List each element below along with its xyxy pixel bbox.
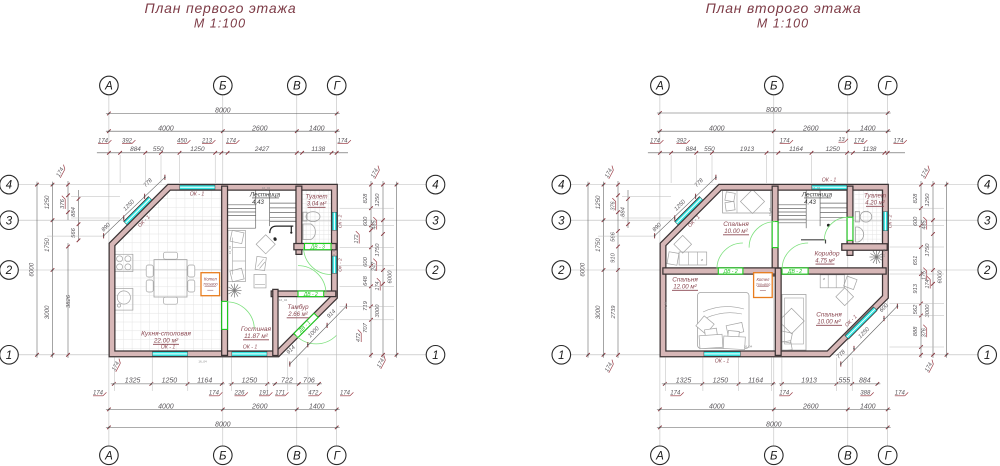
svg-text:План второго этажа: План второго этажа — [706, 0, 862, 16]
svg-text:ДВ - 3: ДВ - 3 — [310, 245, 325, 251]
svg-text:651: 651 — [913, 256, 919, 266]
svg-text:А: А — [104, 450, 113, 462]
svg-text:4,43: 4,43 — [252, 200, 264, 206]
svg-text:910: 910 — [611, 252, 617, 262]
svg-text:1164: 1164 — [789, 146, 803, 153]
svg-text:Котел: Котел — [204, 277, 217, 282]
svg-text:4000: 4000 — [709, 403, 725, 410]
svg-text:700х800: 700х800 — [756, 283, 771, 287]
svg-text:ОК - 2: ОК - 2 — [888, 214, 894, 228]
svg-text:1913: 1913 — [801, 377, 817, 384]
svg-text:6000: 6000 — [29, 262, 36, 276]
svg-text:Спальня: Спальня — [723, 221, 749, 228]
svg-text:4: 4 — [432, 180, 438, 192]
svg-text:10.00 м²: 10.00 м² — [817, 319, 841, 326]
svg-text:3: 3 — [432, 215, 439, 227]
svg-text:1250: 1250 — [713, 377, 729, 384]
svg-text:12.00 м²: 12.00 м² — [673, 284, 697, 291]
svg-text:1250: 1250 — [375, 193, 381, 207]
svg-text:16_04: 16_04 — [262, 186, 271, 190]
svg-text:А: А — [104, 81, 113, 93]
svg-text:4000: 4000 — [158, 125, 174, 132]
svg-text:Г: Г — [885, 81, 892, 93]
svg-text:1138: 1138 — [311, 146, 325, 153]
svg-text:Г: Г — [334, 81, 341, 93]
svg-text:Туалет: Туалет — [864, 193, 886, 200]
svg-text:1: 1 — [6, 350, 12, 362]
svg-text:ДВ - 2: ДВ - 2 — [303, 292, 318, 298]
svg-text:648: 648 — [363, 275, 369, 285]
svg-text:Г: Г — [334, 450, 341, 462]
svg-text:4: 4 — [984, 180, 990, 192]
svg-text:1250: 1250 — [925, 193, 931, 207]
svg-text:16_04: 16_04 — [882, 248, 886, 257]
svg-text:Котел: Котел — [756, 277, 769, 282]
svg-text:884: 884 — [130, 146, 141, 153]
svg-text:2: 2 — [557, 265, 565, 277]
svg-text:ОК - 1: ОК - 1 — [822, 178, 837, 184]
svg-text:1138: 1138 — [863, 146, 877, 153]
svg-text:А: А — [655, 450, 664, 462]
svg-text:4: 4 — [6, 180, 12, 192]
svg-text:1400: 1400 — [860, 125, 876, 132]
svg-text:В: В — [844, 450, 852, 462]
svg-text:М 1:100: М 1:100 — [757, 17, 809, 31]
svg-text:4.20 м²: 4.20 м² — [865, 201, 885, 207]
svg-text:ОК - 2: ОК - 2 — [338, 258, 344, 272]
svg-text:22.00 м²: 22.00 м² — [153, 338, 179, 345]
svg-text:1750: 1750 — [925, 243, 931, 257]
svg-text:600: 600 — [363, 256, 369, 266]
svg-text:1750: 1750 — [375, 243, 381, 257]
svg-text:11.87 м²: 11.87 м² — [244, 333, 269, 340]
svg-text:Туалет: Туалет — [305, 194, 327, 201]
svg-text:1325: 1325 — [676, 377, 692, 384]
svg-text:1164: 1164 — [197, 377, 212, 384]
svg-text:Б: Б — [770, 450, 778, 462]
svg-text:Лестница: Лестница — [249, 191, 281, 198]
svg-text:2: 2 — [5, 265, 13, 277]
svg-text:16_04: 16_04 — [744, 345, 753, 349]
svg-text:1750: 1750 — [595, 238, 602, 252]
svg-text:706: 706 — [303, 377, 315, 384]
svg-text:1: 1 — [558, 350, 564, 362]
svg-text:884: 884 — [859, 377, 871, 384]
svg-text:16_04: 16_04 — [768, 207, 772, 216]
svg-text:1250: 1250 — [162, 377, 178, 384]
svg-text:8000: 8000 — [215, 108, 231, 115]
svg-text:566: 566 — [611, 231, 617, 241]
svg-text:2739: 2739 — [611, 305, 617, 320]
svg-text:913: 913 — [913, 283, 919, 293]
svg-text:Гостиная: Гостиная — [241, 326, 272, 333]
svg-text:Б: Б — [219, 81, 227, 93]
svg-text:В: В — [293, 450, 301, 462]
svg-text:3.04 м²: 3.04 м² — [307, 202, 327, 208]
svg-text:16_04: 16_04 — [198, 360, 207, 364]
svg-text:722: 722 — [281, 377, 293, 384]
svg-text:В: В — [293, 81, 301, 93]
svg-text:1400: 1400 — [309, 125, 325, 132]
svg-text:М 1:100: М 1:100 — [194, 17, 246, 31]
svg-text:Б: Б — [219, 450, 227, 462]
svg-text:10.00 м²: 10.00 м² — [724, 228, 748, 235]
svg-text:4: 4 — [558, 180, 564, 192]
svg-text:2: 2 — [431, 265, 439, 277]
svg-text:3000: 3000 — [595, 305, 602, 319]
svg-text:2600: 2600 — [251, 403, 268, 410]
svg-text:1: 1 — [432, 350, 438, 362]
svg-text:3: 3 — [984, 215, 991, 227]
svg-text:2427: 2427 — [254, 146, 270, 153]
svg-text:3: 3 — [6, 215, 13, 227]
svg-text:1325: 1325 — [125, 377, 141, 384]
svg-text:719: 719 — [363, 300, 369, 310]
svg-text:6000: 6000 — [938, 270, 944, 284]
svg-text:1: 1 — [984, 350, 990, 362]
svg-text:Лестница: Лестница — [801, 191, 833, 198]
svg-text:В: В — [844, 81, 852, 93]
svg-text:700х800: 700х800 — [203, 282, 218, 286]
svg-text:6000: 6000 — [388, 270, 394, 284]
svg-text:3000: 3000 — [375, 304, 381, 318]
svg-text:1913: 1913 — [740, 146, 755, 153]
svg-text:8000: 8000 — [766, 107, 782, 114]
svg-text:884: 884 — [71, 207, 77, 217]
svg-text:2.66 м²: 2.66 м² — [287, 312, 308, 318]
svg-text:600: 600 — [363, 216, 369, 226]
svg-text:828: 828 — [363, 193, 369, 203]
svg-text:Тамбур: Тамбур — [287, 304, 309, 311]
svg-text:ОК - 1: ОК - 1 — [190, 192, 205, 198]
svg-text:16_04: 16_04 — [228, 245, 232, 254]
svg-text:4,43: 4,43 — [804, 200, 816, 206]
svg-text:8000: 8000 — [766, 422, 782, 429]
svg-text:828: 828 — [913, 193, 919, 203]
svg-text:16_04: 16_04 — [664, 301, 668, 310]
svg-text:884: 884 — [686, 146, 697, 153]
svg-text:550: 550 — [704, 146, 715, 153]
svg-text:Коридор: Коридор — [814, 250, 840, 258]
svg-text:4000: 4000 — [709, 125, 725, 132]
svg-text:3826: 3826 — [66, 294, 72, 308]
svg-text:1250: 1250 — [595, 195, 602, 209]
svg-text:1250: 1250 — [242, 377, 258, 384]
svg-text:План первого этажа: План первого этажа — [145, 0, 297, 16]
svg-text:1400: 1400 — [309, 403, 325, 410]
svg-text:4.75 м²: 4.75 м² — [815, 258, 835, 264]
svg-text:А: А — [655, 81, 664, 93]
svg-text:1250: 1250 — [826, 146, 841, 153]
svg-text:ДВ - 2: ДВ - 2 — [723, 269, 738, 275]
svg-text:16_04: 16_04 — [332, 248, 336, 257]
svg-text:ОК - 2: ОК - 2 — [338, 214, 344, 228]
svg-text:ОК - 1: ОК - 1 — [243, 345, 258, 351]
svg-text:1164: 1164 — [748, 377, 763, 384]
svg-text:Спальня: Спальня — [672, 277, 698, 284]
svg-text:16_04: 16_04 — [812, 186, 821, 190]
svg-text:3000: 3000 — [44, 305, 51, 319]
svg-text:2: 2 — [983, 265, 991, 277]
svg-text:1750: 1750 — [44, 238, 51, 252]
svg-text:562: 562 — [913, 304, 919, 314]
svg-text:1400: 1400 — [860, 403, 876, 410]
svg-text:2600: 2600 — [251, 125, 268, 132]
svg-text:2600: 2600 — [802, 125, 819, 132]
svg-text:707: 707 — [363, 322, 369, 332]
svg-text:8000: 8000 — [215, 422, 231, 429]
svg-text:888: 888 — [913, 326, 919, 336]
svg-text:3: 3 — [558, 215, 565, 227]
svg-text:ДВ - 2: ДВ - 2 — [787, 269, 802, 275]
svg-text:4000: 4000 — [158, 403, 174, 410]
svg-text:555: 555 — [838, 377, 850, 384]
svg-text:550: 550 — [153, 146, 164, 153]
svg-text:Г: Г — [885, 450, 892, 462]
svg-text:884: 884 — [621, 207, 627, 217]
svg-text:Кухня-столовая: Кухня-столовая — [141, 331, 191, 338]
svg-text:6000: 6000 — [580, 262, 587, 276]
svg-text:1250: 1250 — [190, 146, 205, 153]
svg-text:Спальня: Спальня — [816, 312, 842, 319]
svg-text:ОК - 1: ОК - 1 — [161, 345, 176, 351]
svg-text:1250: 1250 — [44, 195, 51, 209]
svg-text:600: 600 — [913, 216, 919, 226]
svg-text:ОК - 1: ОК - 1 — [715, 359, 730, 365]
svg-text:Б: Б — [770, 81, 778, 93]
svg-text:16_04: 16_04 — [279, 298, 288, 302]
svg-text:2600: 2600 — [802, 403, 819, 410]
